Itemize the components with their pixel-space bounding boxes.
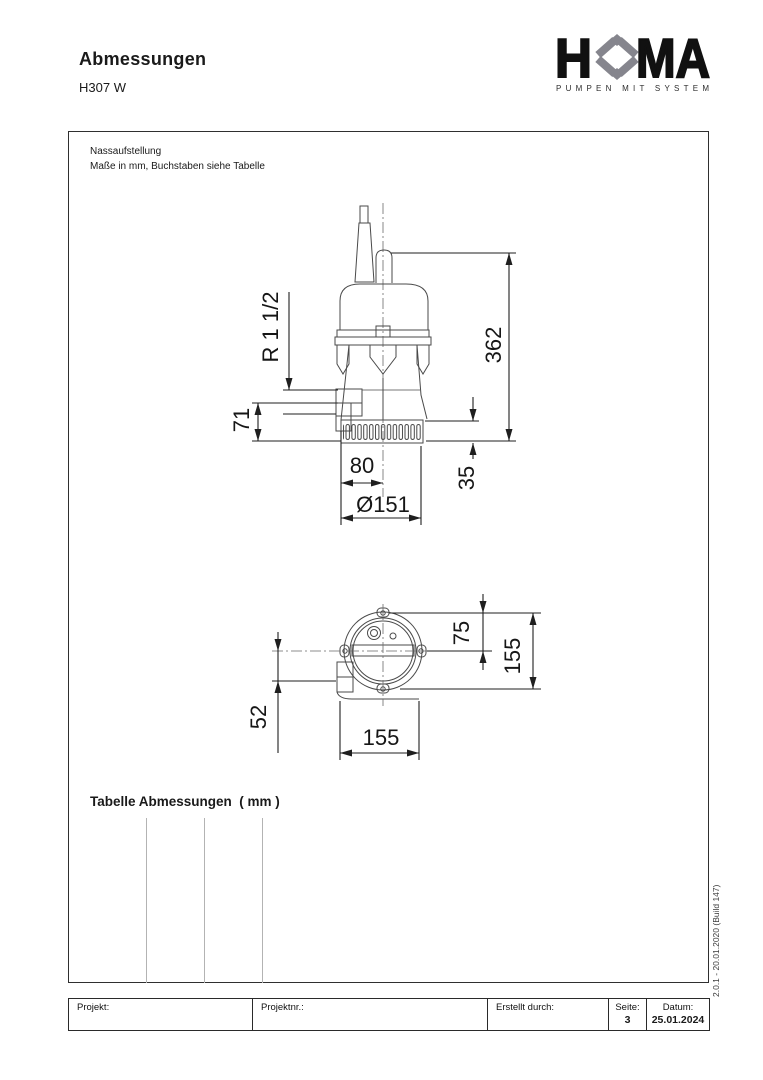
footer-cell-created-by: Erstellt durch: bbox=[488, 999, 609, 1030]
page-label: Seite: bbox=[609, 999, 646, 1013]
datasheet-page: Abmessungen H307 W H MA PUMPEN MIT SYSTE… bbox=[0, 0, 763, 1080]
date-value: 25.01.2024 bbox=[647, 1014, 709, 1026]
top-view-outline bbox=[272, 604, 492, 706]
dim-label-strainer-height: 35 bbox=[456, 466, 478, 490]
table-heading: Tabelle Abmessungen ( mm ) bbox=[90, 794, 280, 809]
created-by-label: Erstellt durch: bbox=[488, 999, 608, 1013]
dim-label-center-to-outlet: 52 bbox=[248, 705, 270, 729]
footer-table: Projekt: Projektnr.: Erstellt durch: Sei… bbox=[68, 998, 710, 1031]
version-text: 2.0.1 - 20.01.2020 (Build 147) bbox=[711, 865, 723, 997]
page-number: 3 bbox=[609, 1014, 646, 1026]
dim-label-width: 155 bbox=[363, 727, 400, 749]
footer-cell-page: Seite: 3 bbox=[609, 999, 647, 1030]
top-view-arrows bbox=[275, 601, 537, 757]
footer-cell-project: Projekt: bbox=[69, 999, 253, 1030]
table-column-line bbox=[262, 818, 263, 983]
technical-drawing bbox=[0, 0, 763, 1080]
top-view-dimension-lines bbox=[272, 594, 541, 760]
footer-cell-project-no: Projektnr.: bbox=[253, 999, 488, 1030]
table-column-line bbox=[204, 818, 205, 983]
dim-label-thread: R 1 1/2 bbox=[260, 292, 282, 363]
dim-label-diameter: Ø151 bbox=[356, 494, 410, 516]
dim-label-top-to-center: 75 bbox=[451, 621, 473, 645]
dim-label-height: 155 bbox=[502, 638, 524, 675]
dim-label-total-height: 362 bbox=[483, 327, 505, 364]
dim-label-outlet-height: 71 bbox=[231, 408, 253, 432]
footer-cell-date: Datum: 25.01.2024 bbox=[647, 999, 709, 1030]
project-no-label: Projektnr.: bbox=[253, 999, 487, 1013]
project-label: Projekt: bbox=[69, 999, 252, 1013]
table-column-line bbox=[146, 818, 147, 983]
date-label: Datum: bbox=[647, 999, 709, 1013]
dim-label-outlet-offset: 80 bbox=[350, 455, 374, 477]
